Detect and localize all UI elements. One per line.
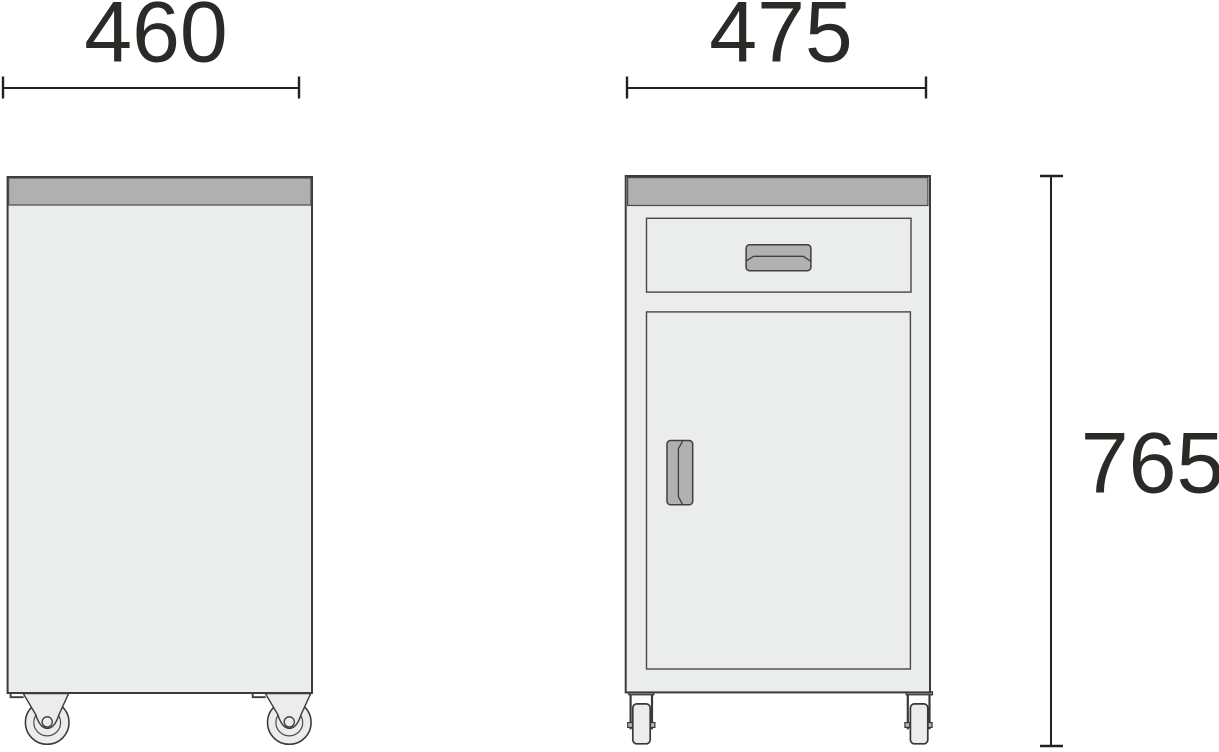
svg-text:765: 765 — [1081, 416, 1219, 512]
svg-text:475: 475 — [709, 0, 853, 81]
svg-text:460: 460 — [84, 0, 228, 81]
